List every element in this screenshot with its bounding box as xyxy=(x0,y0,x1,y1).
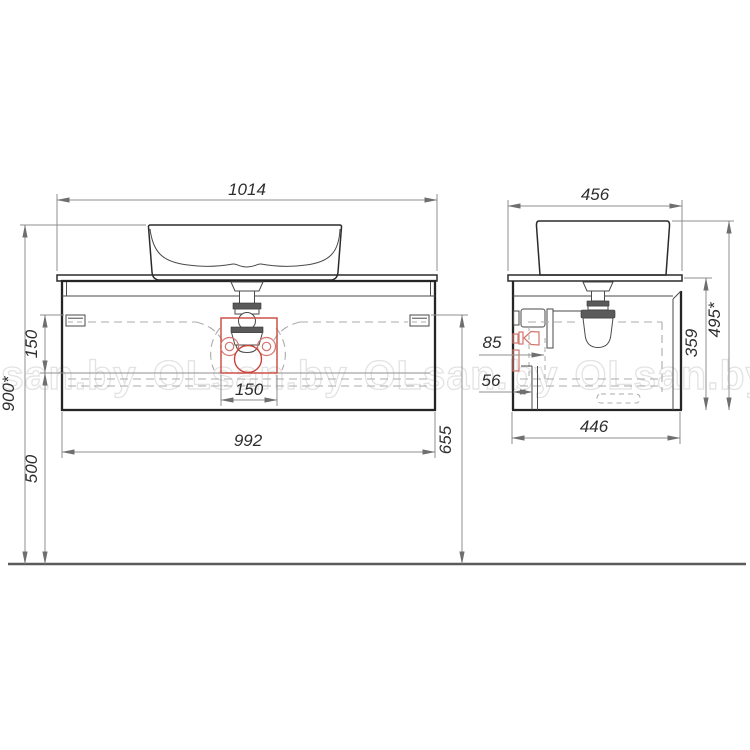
dim-cabinet-height: 359 xyxy=(682,328,701,357)
vanity-technical-drawing: 1014 900* 150 500 655 992 150 xyxy=(0,0,750,750)
dim-cabinet-depth: 446 xyxy=(580,417,609,436)
wall-bracket xyxy=(514,309,546,327)
dim-overall-height-side: 495* xyxy=(705,301,724,337)
dimensions-front: 1014 900* 150 500 655 992 150 xyxy=(0,180,468,564)
countertop-side xyxy=(508,275,682,281)
side-view: 456 495* 359 446 85 56 xyxy=(479,185,734,444)
drawer-slide-right xyxy=(410,315,429,326)
dim-overall-height: 900* xyxy=(0,375,18,411)
dim-cabinet-width: 992 xyxy=(234,431,263,450)
drain-standpipe xyxy=(547,309,586,348)
washbasin-inner-rim xyxy=(150,229,340,267)
dim-drain-wall-offset: 85 xyxy=(483,333,502,352)
washbasin-front xyxy=(148,225,341,280)
water-valve-red xyxy=(513,332,539,372)
drawer-slide-left xyxy=(66,315,85,326)
dim-pipe-wall-offset: 56 xyxy=(482,371,501,390)
dim-slide-to-floor: 655 xyxy=(436,425,455,454)
dim-floor-clearance: 500 xyxy=(22,454,41,483)
technical-drawing-page: OLsan.byOLsan.byOLsan.byOLsan.byOLsan.by xyxy=(0,0,750,750)
dim-countertop-width: 1014 xyxy=(228,180,266,199)
washbasin-side xyxy=(536,221,669,275)
dim-drain-cutout-width: 150 xyxy=(235,380,264,399)
front-view: 1014 900* 150 500 655 992 150 xyxy=(0,180,468,564)
dim-countertop-depth: 456 xyxy=(581,185,610,204)
dim-slide-height: 150 xyxy=(22,329,41,358)
siphon-side xyxy=(581,282,615,348)
